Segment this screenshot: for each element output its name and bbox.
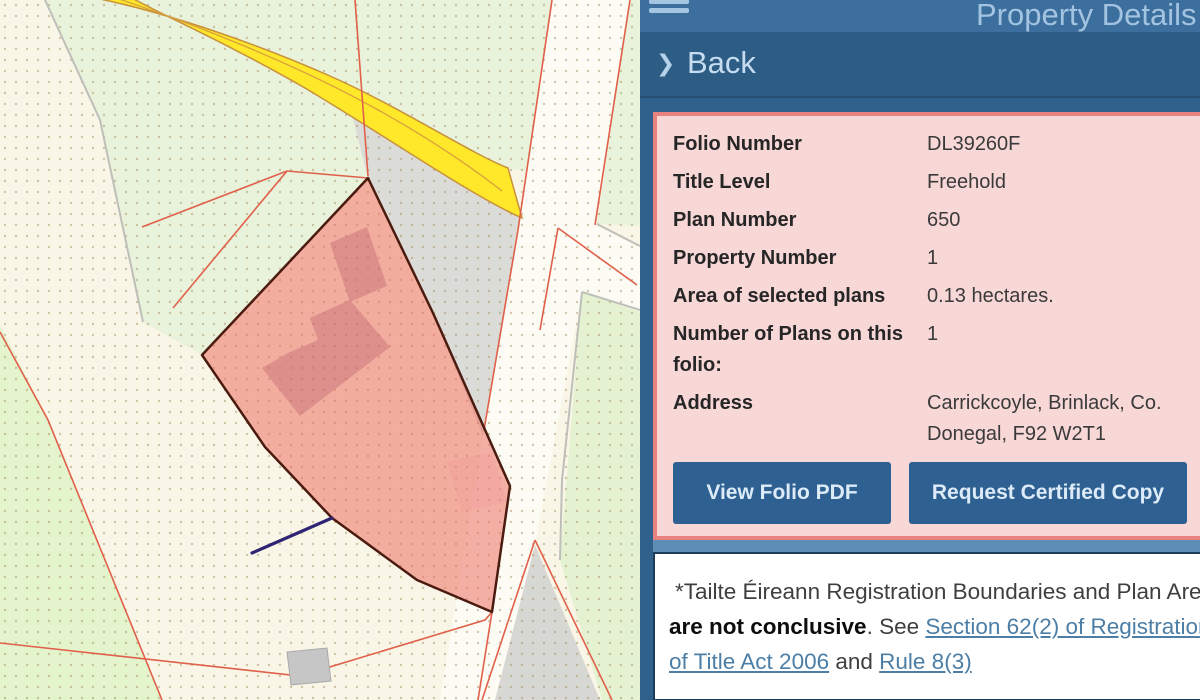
detail-row-plan-number: Plan Number 650 bbox=[673, 205, 1200, 236]
detail-row-property-number: Property Number 1 bbox=[673, 243, 1200, 274]
detail-row-plan-count: Number of Plans on this folio: 1 bbox=[673, 319, 1200, 381]
detail-value: 1 bbox=[927, 319, 1200, 381]
map-canvas[interactable] bbox=[0, 0, 640, 700]
disclaimer-segment: and bbox=[829, 649, 879, 674]
detail-label: Title Level bbox=[673, 167, 905, 198]
detail-label: Area of selected plans bbox=[673, 281, 905, 312]
page-title: Property Details bbox=[976, 0, 1197, 32]
detail-value: Freehold bbox=[927, 167, 1200, 198]
disclaimer-segment: . See bbox=[867, 614, 926, 639]
detail-row-title-level: Title Level Freehold bbox=[673, 167, 1200, 198]
detail-row-address: Address Carrickcoyle, Brinlack, Co. Done… bbox=[673, 388, 1200, 450]
back-chevron-icon: ❯ bbox=[656, 50, 675, 77]
detail-row-folio-number: Folio Number DL39260F bbox=[673, 129, 1200, 160]
detail-row-area: Area of selected plans 0.13 hectares. bbox=[673, 281, 1200, 312]
detail-label: Folio Number bbox=[673, 129, 905, 160]
menu-icon-bar bbox=[649, 8, 689, 13]
detail-label: Plan Number bbox=[673, 205, 905, 236]
detail-label: Address bbox=[673, 388, 905, 450]
folio-details-card: Folio Number DL39260F Title Level Freeho… bbox=[653, 112, 1200, 540]
disclaimer-text: *Tailte Éireann Registration Boundaries … bbox=[669, 574, 1200, 679]
menu-icon-bar bbox=[649, 0, 689, 4]
panel-divider-strip bbox=[653, 540, 1200, 552]
menu-icon[interactable] bbox=[649, 0, 689, 17]
disclaimer-segment: *Tailte Éireann Registration Boundaries … bbox=[675, 579, 1200, 604]
card-button-row: View Folio PDF Request Certified Copy bbox=[673, 462, 1200, 524]
detail-label: Number of Plans on this folio: bbox=[673, 319, 905, 381]
building-gray bbox=[287, 648, 331, 685]
rule-8-link[interactable]: Rule 8(3) bbox=[879, 649, 972, 674]
detail-value: 1 bbox=[927, 243, 1200, 274]
map-viewport[interactable] bbox=[0, 0, 640, 700]
detail-value: DL39260F bbox=[927, 129, 1200, 160]
view-folio-pdf-button[interactable]: View Folio PDF bbox=[673, 462, 891, 524]
detail-label: Property Number bbox=[673, 243, 905, 274]
detail-value: 650 bbox=[927, 205, 1200, 236]
back-button[interactable]: ❯ Back bbox=[640, 32, 1200, 98]
panel-header: Property Details bbox=[640, 0, 1200, 32]
disclaimer-bold: are not conclusive bbox=[669, 614, 867, 639]
property-details-panel: Property Details ❯ Back Folio Number DL3… bbox=[640, 0, 1200, 700]
detail-value: Carrickcoyle, Brinlack, Co. Donegal, F92… bbox=[927, 388, 1200, 450]
request-certified-copy-button[interactable]: Request Certified Copy bbox=[909, 462, 1187, 524]
back-label: Back bbox=[687, 45, 756, 81]
disclaimer-box: *Tailte Éireann Registration Boundaries … bbox=[653, 552, 1200, 700]
detail-value: 0.13 hectares. bbox=[927, 281, 1200, 312]
app-window: Property Details ❯ Back Folio Number DL3… bbox=[0, 0, 1200, 700]
